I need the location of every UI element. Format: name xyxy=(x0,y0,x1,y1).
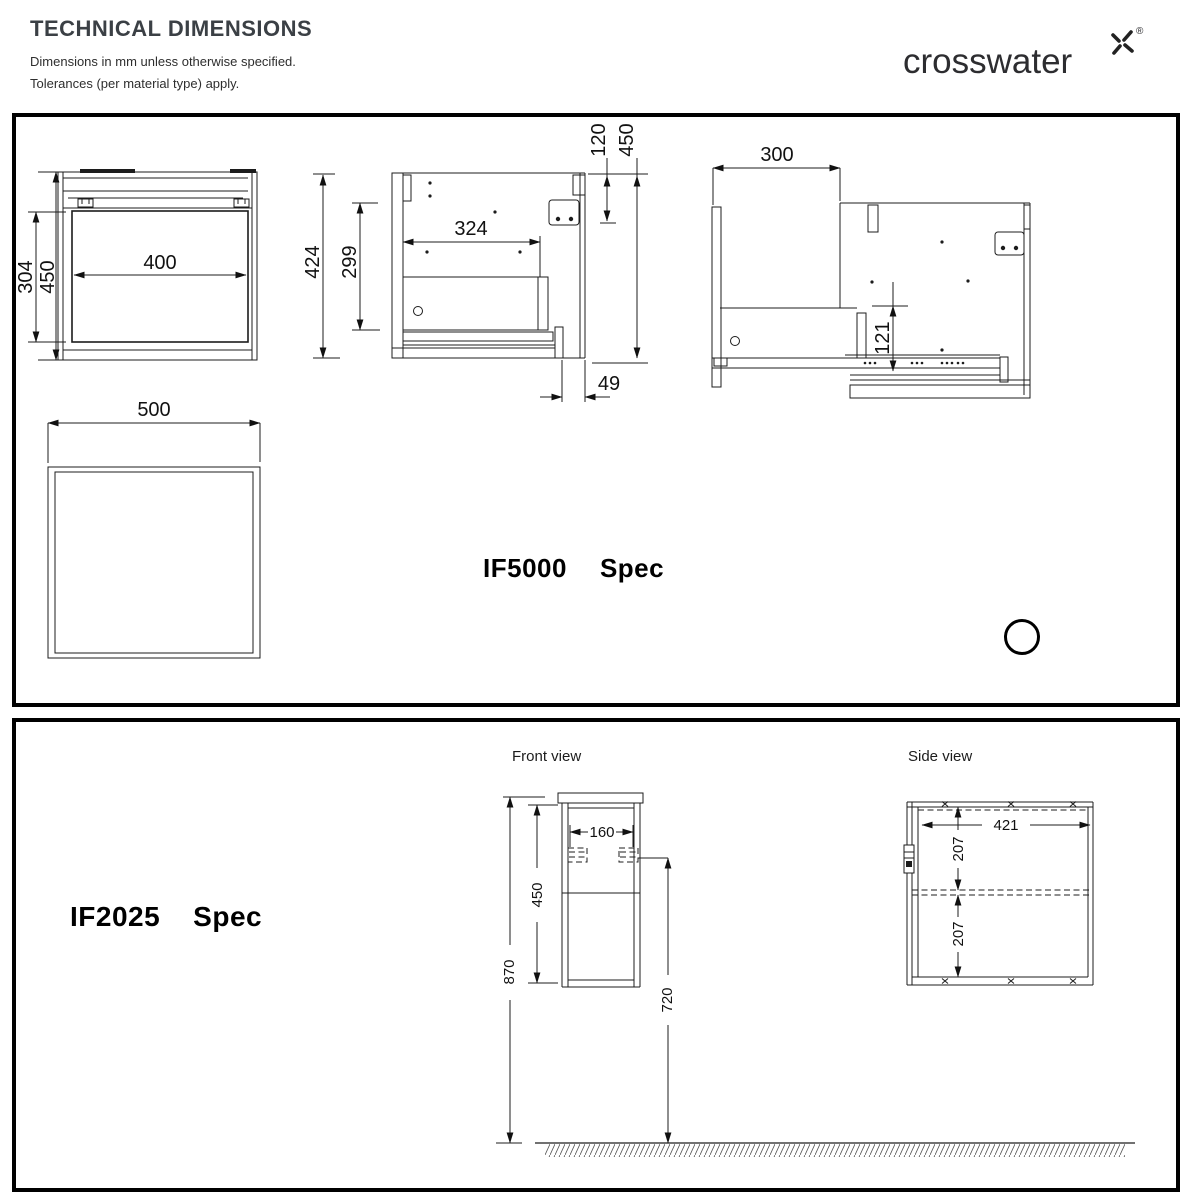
circle-symbol xyxy=(1004,619,1040,655)
note-tolerances: Tolerances (per material type) apply. xyxy=(30,76,239,91)
dim-side-rear-gap: 49 xyxy=(598,373,620,395)
dim-front-overall-height: 870 xyxy=(501,959,518,984)
if5000-side-open-section: 300 121 xyxy=(712,144,1030,398)
dim-front-opening-height: 304 xyxy=(16,260,37,293)
dim-plan-width: 500 xyxy=(137,399,170,421)
if5000-model-label: IF5000Spec xyxy=(483,553,664,584)
if5000-front-elevation: 400 304 450 xyxy=(16,169,257,360)
technical-dimensions-sheet: { "header": { "title": "TECHNICAL DIMENS… xyxy=(0,0,1200,1200)
dim-side-depth: 421 xyxy=(993,817,1018,834)
if2025-model-label: IF2025Spec xyxy=(70,901,262,933)
if2025-side-view: 421 207 207 xyxy=(904,802,1093,986)
if2025-model: IF2025 xyxy=(70,901,160,932)
if5000-panel: 400 304 450 424 xyxy=(12,113,1180,707)
if5000-model: IF5000 xyxy=(483,553,567,583)
dim-side-height: 424 xyxy=(302,245,324,278)
dim-front-carcass-height: 450 xyxy=(529,882,546,907)
side-view-label: Side view xyxy=(908,748,972,765)
if2025-drawings: 160 450 870 720 xyxy=(16,722,1176,1188)
if5000-plan-view: 500 xyxy=(48,399,260,658)
side-bracket xyxy=(904,845,914,873)
if2025-spec: Spec xyxy=(193,901,262,932)
dim-front-opening-width: 400 xyxy=(143,252,176,274)
drawer-runner-holes xyxy=(864,362,965,365)
note-units: Dimensions in mm unless otherwise specif… xyxy=(30,54,296,69)
wall-bracket-left xyxy=(568,848,587,862)
dim-side-lower-section: 207 xyxy=(950,921,967,946)
dim-side-overall-height: 450 xyxy=(616,123,638,156)
registered-mark: ® xyxy=(1136,26,1143,37)
floor-hatch xyxy=(545,1144,1125,1157)
if5000-spec: Spec xyxy=(600,553,664,583)
front-view-label: Front view xyxy=(512,748,581,765)
dim-front-fixing-centres: 160 xyxy=(589,824,614,841)
dim-front-height: 450 xyxy=(37,260,59,293)
dim-front-fixing-height: 720 xyxy=(659,987,676,1012)
if5000-drawings: 400 304 450 424 xyxy=(16,117,1176,703)
dim-open-extension: 300 xyxy=(760,144,793,166)
dim-side-inner-height: 299 xyxy=(339,245,361,278)
page-title: TECHNICAL DIMENSIONS xyxy=(30,16,312,42)
if5000-side-section: 424 299 324 120 450 49 xyxy=(302,123,648,402)
dim-side-inner-depth: 324 xyxy=(454,218,487,240)
if2025-front-view: 160 450 870 720 xyxy=(496,793,1135,1157)
dim-open-drawer-height: 121 xyxy=(872,321,894,354)
dim-side-upper-section: 207 xyxy=(950,836,967,861)
if2025-panel: 160 450 870 720 xyxy=(12,718,1180,1192)
crosswater-logo-text: crosswater xyxy=(903,42,1072,82)
crosswater-x-icon xyxy=(1108,28,1136,58)
wall-bracket-right xyxy=(619,848,638,862)
dim-side-fixing-offset: 120 xyxy=(588,123,610,156)
